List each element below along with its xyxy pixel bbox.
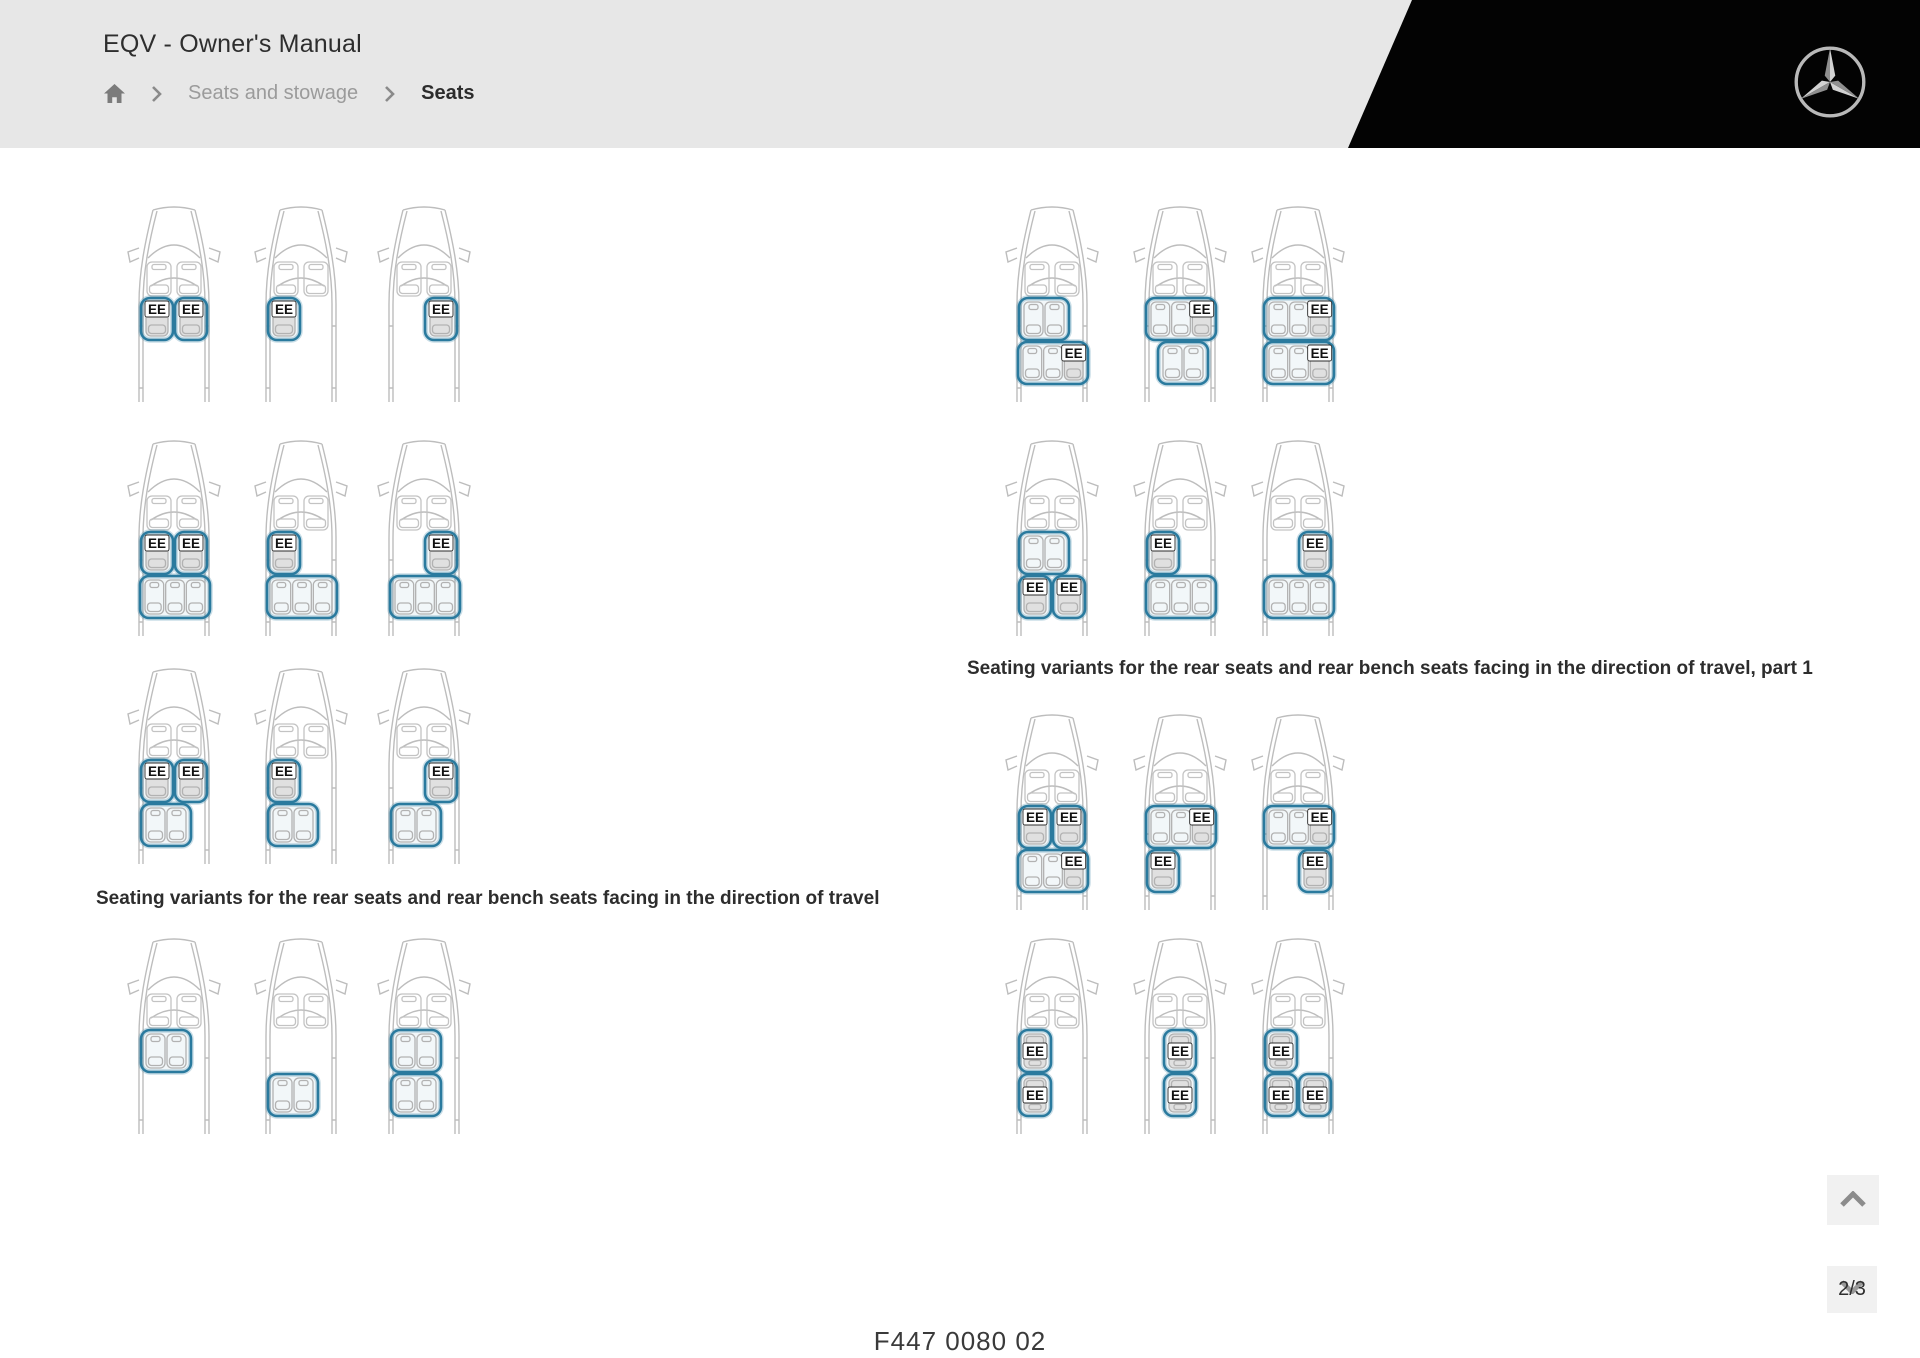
van-top-view: EE [372, 666, 476, 866]
svg-text:EE: EE [275, 764, 293, 779]
svg-text:EE: EE [148, 536, 166, 551]
svg-text:EE: EE [1171, 1088, 1189, 1103]
van-top-view: EE EE [1246, 712, 1350, 912]
svg-text:EE: EE [1311, 346, 1329, 361]
svg-text:EE: EE [1306, 1088, 1324, 1103]
van-top-view: EE [249, 204, 353, 404]
svg-text:EE: EE [1306, 536, 1324, 551]
van-seating-diagram-right-9: EE EE [1246, 712, 1350, 912]
svg-text:EE: EE [1306, 854, 1324, 869]
svg-text:EE: EE [182, 764, 200, 779]
svg-text:EE: EE [1154, 854, 1172, 869]
svg-text:EE: EE [1065, 854, 1083, 869]
svg-text:EE: EE [432, 536, 450, 551]
header-black-wedge [1348, 0, 1920, 148]
van-seating-diagram-left-4: EE EE [122, 438, 226, 638]
van-top-view: EE [1128, 438, 1232, 638]
van-top-view [122, 936, 226, 1136]
scroll-down-button[interactable]: 2/3 [1827, 1266, 1877, 1313]
svg-text:EE: EE [148, 302, 166, 317]
mercedes-star-icon [1792, 44, 1868, 120]
svg-text:EE: EE [1060, 810, 1078, 825]
svg-text:EE: EE [148, 764, 166, 779]
van-top-view: EE [372, 204, 476, 404]
svg-text:EE: EE [182, 536, 200, 551]
van-seating-diagram-left-1: EE EE [122, 204, 226, 404]
van-top-view: EE [1246, 438, 1350, 638]
van-top-view: EE EE [1128, 936, 1232, 1136]
van-seating-diagram-left-11 [249, 936, 353, 1136]
svg-text:EE: EE [1026, 1088, 1044, 1103]
chevron-right-icon [151, 85, 162, 103]
van-seating-diagram-right-5: EE [1128, 438, 1232, 638]
page-title: EQV - Owner's Manual [103, 30, 362, 59]
van-top-view: EE [249, 438, 353, 638]
svg-text:EE: EE [1026, 810, 1044, 825]
svg-text:EE: EE [1026, 1044, 1044, 1059]
scroll-up-button[interactable] [1827, 1175, 1879, 1225]
van-seating-diagram-left-7: EE EE [122, 666, 226, 866]
svg-text:EE: EE [275, 302, 293, 317]
van-top-view: EE [1000, 204, 1104, 404]
van-seating-diagram-right-12: EE EE EE [1246, 936, 1350, 1136]
figure-caption-left: Seating variants for the rear seats and … [96, 888, 879, 910]
van-top-view: EE EE [1000, 438, 1104, 638]
van-top-view: EE EE EE [1000, 712, 1104, 912]
svg-text:EE: EE [1026, 580, 1044, 595]
van-top-view: EE EE [122, 666, 226, 866]
svg-text:EE: EE [1171, 1044, 1189, 1059]
van-top-view: EE EE [122, 204, 226, 404]
van-seating-diagram-right-7: EE EE EE [1000, 712, 1104, 912]
van-seating-diagram-right-1: EE [1000, 204, 1104, 404]
van-seating-diagram-left-10 [122, 936, 226, 1136]
van-top-view [372, 936, 476, 1136]
van-top-view: EE [249, 666, 353, 866]
svg-text:EE: EE [275, 536, 293, 551]
van-top-view [249, 936, 353, 1136]
svg-text:EE: EE [1193, 302, 1211, 317]
breadcrumb-item-seats-and-stowage[interactable]: Seats and stowage [188, 82, 358, 105]
van-seating-diagram-left-3: EE [372, 204, 476, 404]
van-top-view: EE [1128, 204, 1232, 404]
svg-text:EE: EE [1311, 302, 1329, 317]
van-top-view: EE EE [1128, 712, 1232, 912]
van-top-view: EE EE [122, 438, 226, 638]
svg-text:EE: EE [1060, 580, 1078, 595]
svg-text:EE: EE [1311, 810, 1329, 825]
van-top-view: EE EE [1246, 204, 1350, 404]
van-seating-diagram-right-6: EE [1246, 438, 1350, 638]
header: EQV - Owner's Manual Seats and stowage S… [0, 0, 1920, 148]
van-seating-diagram-left-6: EE [372, 438, 476, 638]
home-icon[interactable] [104, 84, 125, 104]
van-top-view: EE [372, 438, 476, 638]
chevron-up-icon [1839, 1191, 1867, 1210]
van-seating-diagram-right-3: EE EE [1246, 204, 1350, 404]
svg-text:EE: EE [1272, 1088, 1290, 1103]
van-seating-diagram-left-12 [372, 936, 476, 1136]
van-top-view: EE EE [1000, 936, 1104, 1136]
van-seating-diagram-right-8: EE EE [1128, 712, 1232, 912]
page-indicator: 2/3 [1827, 1278, 1877, 1301]
van-seating-diagram-right-11: EE EE [1128, 936, 1232, 1136]
figure-code: F447 0080 02 [0, 1326, 1920, 1357]
svg-text:EE: EE [182, 302, 200, 317]
svg-text:EE: EE [432, 302, 450, 317]
breadcrumb: Seats and stowage Seats [104, 82, 475, 105]
chevron-right-icon [384, 85, 395, 103]
van-top-view: EE EE EE [1246, 936, 1350, 1136]
svg-text:EE: EE [432, 764, 450, 779]
svg-text:EE: EE [1154, 536, 1172, 551]
van-seating-diagram-left-5: EE [249, 438, 353, 638]
van-seating-diagram-right-4: EE EE [1000, 438, 1104, 638]
page: EQV - Owner's Manual Seats and stowage S… [0, 0, 1920, 1358]
van-seating-diagram-right-10: EE EE [1000, 936, 1104, 1136]
figure-caption-right: Seating variants for the rear seats and … [967, 658, 1813, 680]
svg-text:EE: EE [1065, 346, 1083, 361]
van-seating-diagram-left-9: EE [372, 666, 476, 866]
svg-text:EE: EE [1193, 810, 1211, 825]
van-seating-diagram-left-2: EE [249, 204, 353, 404]
svg-text:EE: EE [1272, 1044, 1290, 1059]
van-seating-diagram-left-8: EE [249, 666, 353, 866]
van-seating-diagram-right-2: EE [1128, 204, 1232, 404]
breadcrumb-item-seats: Seats [421, 82, 474, 105]
